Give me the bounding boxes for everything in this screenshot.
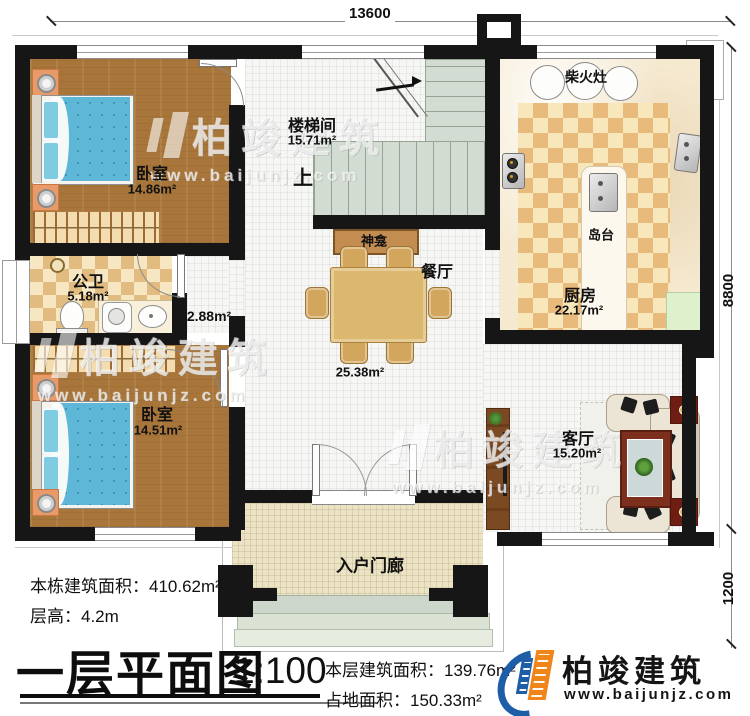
stairs-arrowhead [412,76,422,86]
nightstand [32,184,59,211]
floor-height-label: 层高： [30,607,81,626]
nightstand [32,489,59,516]
hallway-area: 2.88m² [187,308,231,324]
bed-top-duvet [60,97,130,181]
wall-segment [229,316,245,347]
door-swing-arc [201,63,244,106]
dim-right-lower-value: 1200 [720,572,737,605]
porch-pillar [218,565,253,617]
bed-top-pillow [42,141,60,181]
floor-area-line: 本层建筑面积：139.76m² [325,656,516,681]
washing-machine-door [108,308,125,325]
bed-bottom-duvet [60,403,130,505]
bathroom-area: 5.18m² [67,289,108,304]
wall-segment [229,407,245,530]
building-area-value: 410.62m² [149,577,221,596]
island-sink [589,173,618,212]
nightstand [32,374,59,401]
wall-segment [485,45,500,250]
dining-label: 餐厅 [421,258,453,282]
brand-url: www.baijunjz.com [564,686,733,703]
stairwell-area: 15.71m² [288,133,336,148]
kitchen-door-floor [485,250,500,318]
dining-area: 25.38m² [336,365,384,380]
eave-line-top [12,35,718,36]
wood-stove-burner [530,65,565,100]
window [95,527,195,541]
shrine-label: 神龛 [361,231,387,250]
wall-segment [25,243,245,256]
floor-drain [50,258,65,273]
island-sink-drain [598,181,603,186]
footprint-value: 150.33m² [410,691,482,710]
gas-burner-cap [510,175,513,178]
wall-segment [229,105,245,260]
window [542,532,668,546]
nightstand [32,69,59,96]
footprint-line: 占地面积：150.33m² [325,686,482,711]
sink-drain [684,142,689,147]
wardrobe-bottom [32,345,176,373]
wall-segment [313,215,487,229]
wall-segment [424,45,537,59]
bath-sink-drain [149,314,153,318]
chimney-flue [487,22,511,38]
island-sink-drain [598,196,603,201]
wall-segment [15,342,30,541]
stairs-upper-flight [425,59,487,143]
dining-chair [305,287,329,319]
bedroom-top-area: 14.86m² [128,182,176,197]
wall-segment [700,45,714,344]
sink-drain [684,156,689,161]
toilet-bowl [60,301,84,331]
bed-bottom-pillow [42,408,60,454]
tv [503,432,507,496]
hallway-opening-floor [229,260,245,316]
cabinet-plant [489,412,502,425]
wall-segment [15,333,187,345]
window [77,45,188,59]
wall-segment [682,344,696,546]
dim-right-upper-value: 8800 [720,274,737,307]
wall-segment [188,45,302,59]
dim-top-value: 13600 [345,5,395,22]
wood-stove-burner [603,66,638,101]
floor-height-value: 4.2m [81,607,119,626]
porch-step-3 [234,629,493,647]
dining-table [330,267,427,343]
footprint-label: 占地面积： [325,691,410,710]
stairs-up-label: 上 [293,162,313,191]
wardrobe-top [32,211,160,244]
bedroom-top-label: 卧室 [136,160,168,184]
porch-label: 入户门廊 [336,552,404,577]
window [2,260,30,344]
living-area: 15.20m² [553,446,601,461]
window [537,45,656,59]
floor-area-label: 本层建筑面积： [325,661,444,680]
dining-chair [428,287,452,319]
plan-scale: 1:100 [234,650,327,692]
kitchen-area: 22.17m² [555,303,603,318]
island-label: 岛台 [588,225,614,244]
wall-segment [15,527,95,541]
window [302,45,424,59]
gas-burner-cap [510,161,513,164]
wall-segment [415,490,483,503]
brand-name: 柏竣建筑 [562,646,706,691]
porch-pillar-arm [253,588,277,601]
building-area-label: 本栋建筑面积： [30,577,149,596]
title-underline-thick [20,694,320,698]
wall-segment [245,490,312,503]
bed-top-pillow [42,100,60,140]
wood-stove-label: 柴火灶 [565,67,607,87]
table-plant [635,458,653,476]
stairs-lower-flight [313,141,487,217]
eave-line-bottom-left [15,547,241,548]
floor-plan-canvas: 13600 8800 1200 [0,0,750,716]
wall-segment [668,532,714,546]
bedroom-bottom-area: 14.51m² [134,423,182,438]
bed-top-headboard [32,95,42,183]
wall-segment [485,330,714,344]
floor-height-line: 层高：4.2m [30,602,119,627]
building-area-line: 本栋建筑面积：410.62m² [30,572,221,597]
porch-pillar-arm [429,588,453,601]
wall-segment [497,532,542,546]
wall-segment [15,45,30,262]
bedroom-bottom-label: 卧室 [141,401,173,425]
kitchen-window-counter [666,292,702,332]
porch-pillar [453,565,488,617]
